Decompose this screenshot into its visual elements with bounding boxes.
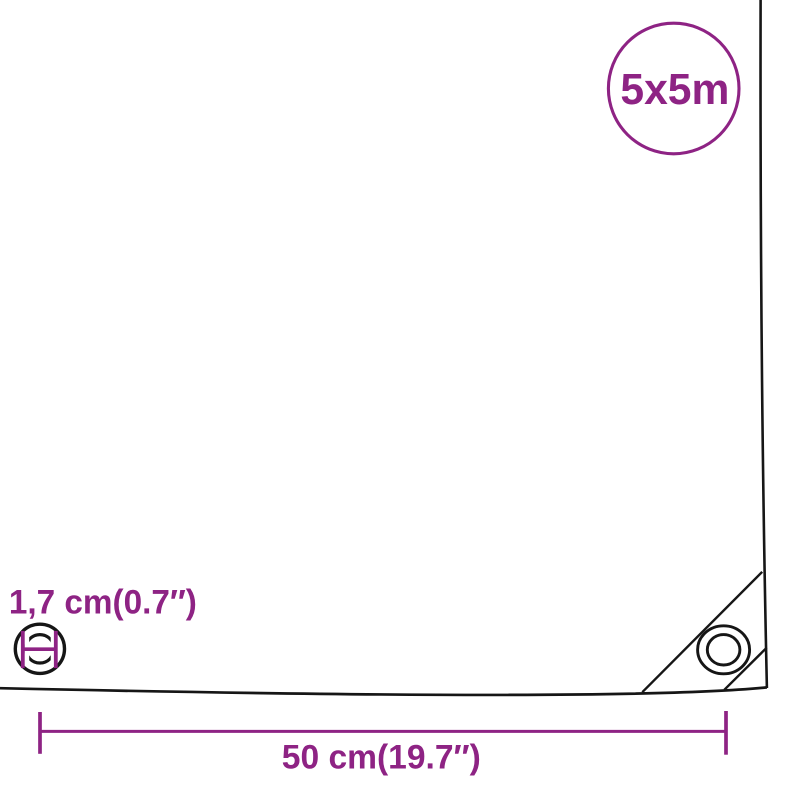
svg-text:50 cm(19.7″): 50 cm(19.7″) bbox=[282, 738, 481, 776]
svg-text:5x5m: 5x5m bbox=[620, 65, 729, 114]
svg-text:1,7 cm(0.7″): 1,7 cm(0.7″) bbox=[9, 584, 197, 622]
